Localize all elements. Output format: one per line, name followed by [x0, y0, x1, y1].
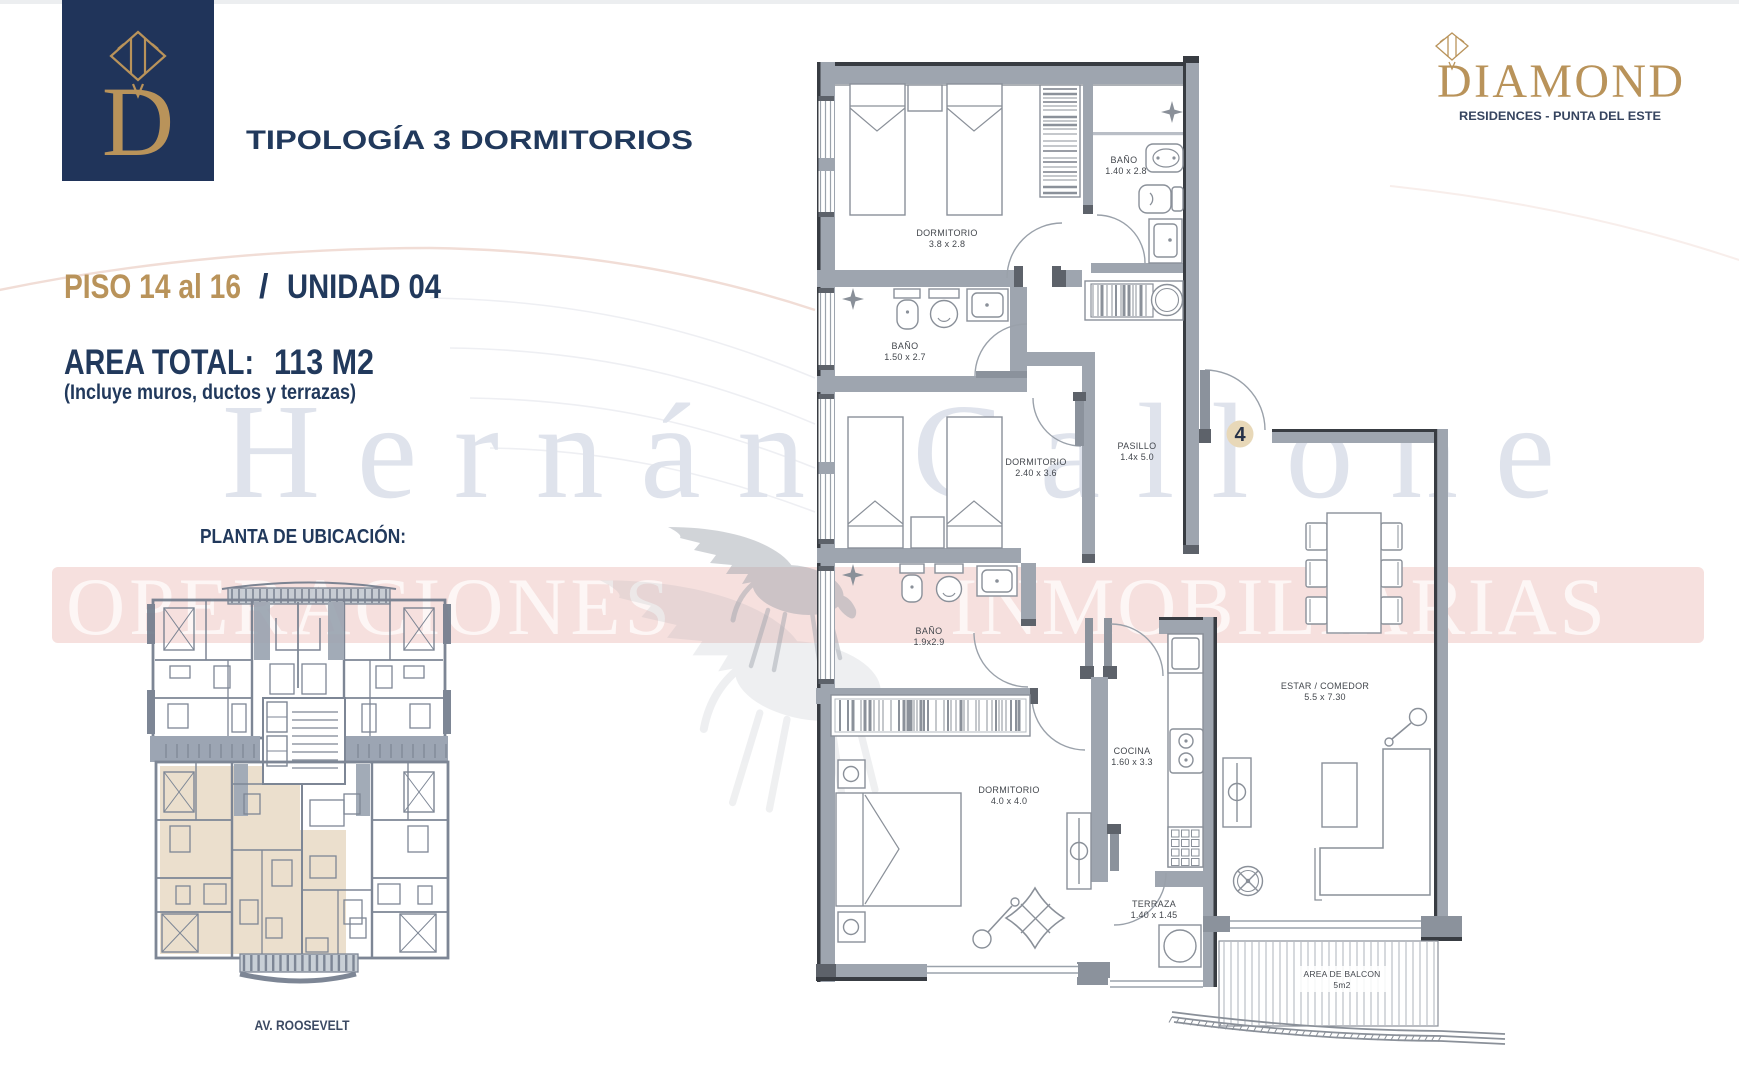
svg-text:3.8 x 2.8: 3.8 x 2.8	[929, 239, 965, 249]
svg-text:D: D	[102, 66, 174, 177]
svg-text:(Incluye muros, ductos y terra: (Incluye muros, ductos y terrazas)	[64, 381, 356, 404]
svg-text:PASILLO: PASILLO	[1118, 441, 1157, 451]
svg-text:DORMITORIO: DORMITORIO	[978, 785, 1039, 795]
svg-text:2.40 x 3.6: 2.40 x 3.6	[1015, 468, 1057, 478]
svg-text:ESTAR / COMEDOR: ESTAR / COMEDOR	[1281, 681, 1370, 691]
svg-text:1.50 x 2.7: 1.50 x 2.7	[884, 352, 926, 362]
svg-text:4.0 x 4.0: 4.0 x 4.0	[991, 796, 1027, 806]
svg-text:OPERACIONES: OPERACIONES	[66, 561, 670, 652]
svg-text:COCINA: COCINA	[1114, 746, 1151, 756]
svg-text:INMOBILIARIAS: INMOBILIARIAS	[950, 561, 1605, 652]
svg-text:DORMITORIO: DORMITORIO	[1005, 457, 1066, 467]
svg-text:1.40 x 2.8: 1.40 x 2.8	[1105, 166, 1147, 176]
svg-text:AV. ROOSEVELT: AV. ROOSEVELT	[255, 1017, 350, 1033]
svg-text:1.40 x 1.45: 1.40 x 1.45	[1131, 910, 1178, 920]
svg-text:TIPOLOGÍA 3 DORMITORIOS: TIPOLOGÍA 3 DORMITORIOS	[246, 124, 693, 155]
svg-text:1.4x 5.0: 1.4x 5.0	[1120, 452, 1154, 462]
svg-text:UNIDAD 04: UNIDAD 04	[287, 268, 441, 306]
svg-text:PLANTA DE UBICACIÓN:: PLANTA DE UBICACIÓN:	[200, 524, 406, 548]
svg-text:1.9x2.9: 1.9x2.9	[914, 637, 945, 647]
svg-text:BAÑO: BAÑO	[1110, 155, 1137, 165]
svg-text:BAÑO: BAÑO	[891, 341, 918, 351]
svg-text:/: /	[259, 268, 269, 306]
svg-text:RESIDENCES - PUNTA DEL ESTE: RESIDENCES - PUNTA DEL ESTE	[1459, 109, 1661, 123]
svg-text:DIAMOND: DIAMOND	[1437, 55, 1683, 108]
svg-text:4: 4	[1234, 424, 1246, 446]
svg-text:TERRAZA: TERRAZA	[1132, 899, 1176, 909]
svg-text:DORMITORIO: DORMITORIO	[916, 228, 977, 238]
svg-text:AREA DE BALCON: AREA DE BALCON	[1304, 969, 1381, 979]
svg-text:113 M2: 113 M2	[274, 343, 374, 382]
svg-text:AREA TOTAL:: AREA TOTAL:	[64, 343, 254, 382]
svg-text:5m2: 5m2	[1333, 980, 1350, 990]
svg-text:5.5 x 7.30: 5.5 x 7.30	[1304, 692, 1346, 702]
svg-text:PISO 14 al 16: PISO 14 al 16	[64, 268, 241, 306]
svg-text:1.60 x 3.3: 1.60 x 3.3	[1111, 757, 1153, 767]
svg-text:BAÑO: BAÑO	[915, 626, 942, 636]
